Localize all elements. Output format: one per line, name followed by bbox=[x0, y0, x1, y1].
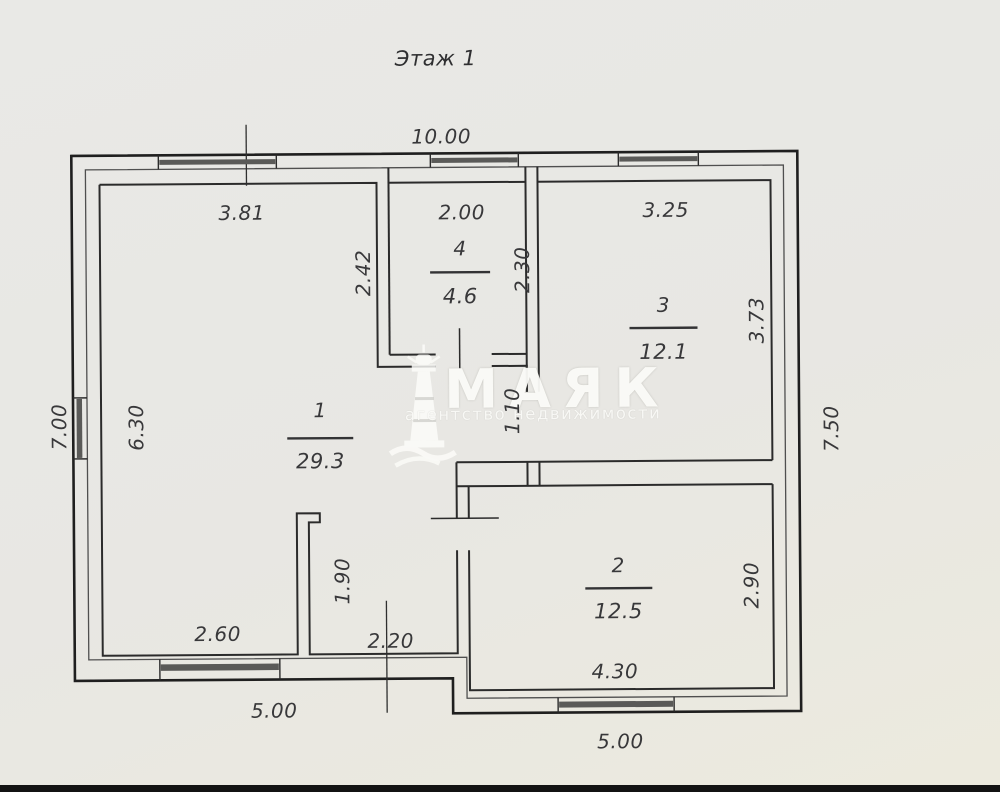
dim-left-outer: 7.00 bbox=[47, 404, 71, 451]
room-3-number: 3 bbox=[657, 293, 670, 317]
dim-room4-right: 2.30 bbox=[510, 246, 534, 293]
window-bottom-left bbox=[160, 659, 280, 681]
room-2-number: 2 bbox=[611, 553, 624, 577]
dim-bottom-right-outer: 5.00 bbox=[597, 729, 644, 753]
dim-partition: 1.90 bbox=[330, 558, 354, 605]
window-top-2 bbox=[430, 153, 518, 168]
dim-right-outer: 7.50 bbox=[819, 405, 843, 452]
watermark-subtitle: агентство недвижимости bbox=[405, 403, 662, 424]
floorplan-photo: МАЯК агентство недвижимости Этаж 1 10.00… bbox=[0, 0, 1000, 792]
window-top-1 bbox=[158, 155, 276, 170]
dim-room1-top: 3.81 bbox=[218, 201, 265, 225]
dim-door-room3: 1.10 bbox=[500, 388, 524, 435]
room-4-area: 4.6 bbox=[443, 284, 478, 308]
dim-top-width: 10.00 bbox=[411, 124, 471, 148]
dim-room1-bottom-left: 2.60 bbox=[194, 622, 241, 646]
room-3-area: 12.1 bbox=[639, 340, 688, 364]
dim-room1-bottom-right: 2.20 bbox=[367, 629, 414, 653]
window-left bbox=[73, 398, 87, 459]
dim-room4-top: 2.00 bbox=[438, 200, 485, 224]
dim-bottom-left-outer: 5.00 bbox=[251, 698, 298, 722]
page-title: Этаж 1 bbox=[395, 46, 477, 71]
floor-plan: МАЯК агентство недвижимости Этаж 1 10.00… bbox=[0, 0, 1000, 792]
room-label-bars bbox=[286, 271, 699, 591]
dim-room1-left: 6.30 bbox=[124, 404, 148, 451]
window-bottom-right bbox=[558, 697, 674, 713]
dim-room2-bottom: 4.30 bbox=[592, 659, 639, 683]
room-1-number: 1 bbox=[313, 398, 326, 422]
window-top-3 bbox=[618, 152, 698, 167]
room-2-area: 12.5 bbox=[594, 599, 643, 623]
dim-room4-left: 2.42 bbox=[351, 250, 375, 297]
photo-edge-strip bbox=[0, 785, 1000, 792]
dim-room2-right: 2.90 bbox=[739, 562, 763, 609]
dim-room3-top: 3.25 bbox=[642, 198, 689, 222]
room-1-area: 29.3 bbox=[296, 449, 345, 473]
room-4-number: 4 bbox=[453, 236, 466, 260]
dim-room3-right: 3.73 bbox=[744, 297, 768, 344]
